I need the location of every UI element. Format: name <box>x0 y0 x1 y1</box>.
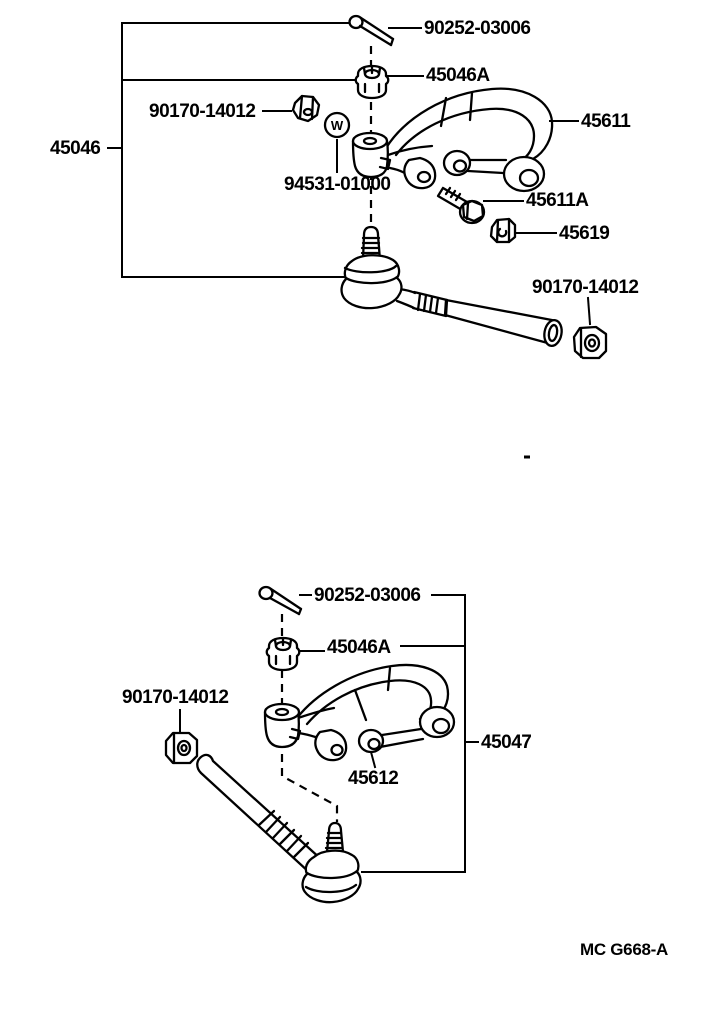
part-label-upper-washer: 94531-01000 <box>284 175 391 194</box>
part-label-upper-plug: 45619 <box>559 224 609 243</box>
part-label-upper-castle-nut: 45046A <box>426 66 490 85</box>
washer-symbol-letter: W <box>331 118 344 133</box>
part-label-upper-knuckle-arm: 45611 <box>581 112 630 131</box>
part-label-upper-rod-end-nut: 90170-14012 <box>532 278 639 297</box>
upper-cotter-pin <box>350 16 394 45</box>
part-label-upper-arm-bolt: 45611A <box>526 191 589 210</box>
lower-castle-nut <box>267 638 300 670</box>
upper-plug <box>491 219 515 242</box>
part-label-upper-arm-nut: 90170-14012 <box>149 102 256 121</box>
lower-tie-rod-end <box>197 755 360 902</box>
lower-arm-nut <box>166 733 197 763</box>
lower-cotter-pin <box>260 587 302 614</box>
upper-arm-nut <box>293 96 319 121</box>
diagram-code: MC G668-A <box>580 941 668 958</box>
part-label-lower-castle-nut: 45046A <box>327 638 391 657</box>
part-label-upper-cotter-pin: 90252-03006 <box>424 19 531 38</box>
part-label-lower-arm-nut: 90170-14012 <box>122 688 229 707</box>
upper-tie-rod-end <box>342 227 564 347</box>
upper-arm-bolt <box>438 188 484 223</box>
washer-symbol: W <box>325 113 349 137</box>
parts-diagram-page: W <box>0 0 720 1014</box>
upper-castle-nut <box>356 66 389 98</box>
diagram-line-art: W <box>0 0 720 1014</box>
part-label-lower-knuckle-arm: 45612 <box>348 769 398 788</box>
group-label-45046: 45046 <box>50 139 100 158</box>
lower-knuckle-arm <box>265 665 454 760</box>
part-label-lower-cotter-pin: 90252-03006 <box>314 586 421 605</box>
upper-group-bracket <box>108 23 356 277</box>
upper-rod-end-nut <box>574 327 606 358</box>
group-label-45047: 45047 <box>481 733 531 752</box>
